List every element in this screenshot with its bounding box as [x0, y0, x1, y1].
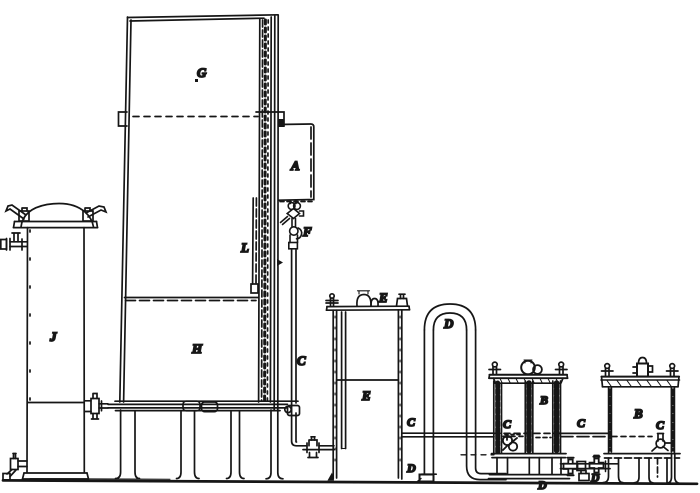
svg-text:A: A	[290, 158, 300, 173]
svg-text:D: D	[537, 478, 547, 492]
svg-text:C: C	[407, 415, 416, 429]
svg-text:D: D	[406, 461, 416, 475]
svg-text:H: H	[191, 341, 203, 356]
svg-text:B: B	[633, 406, 643, 421]
svg-text:C: C	[577, 416, 586, 430]
svg-text:F: F	[302, 224, 312, 239]
svg-text:C: C	[503, 417, 512, 431]
svg-text:E: E	[361, 388, 371, 403]
svg-text:L: L	[240, 240, 249, 255]
svg-text:C: C	[297, 353, 306, 368]
svg-text:D: D	[443, 316, 454, 331]
svg-text:B: B	[539, 393, 548, 407]
svg-text:J: J	[49, 329, 57, 344]
svg-text:G: G	[197, 65, 207, 80]
svg-text:E: E	[378, 290, 388, 305]
svg-text:C: C	[656, 418, 665, 432]
